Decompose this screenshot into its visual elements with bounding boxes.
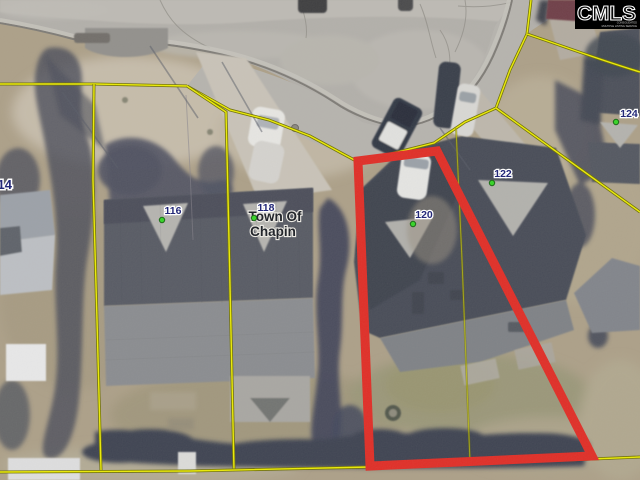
svg-text:124: 124 — [620, 108, 638, 120]
svg-text:122: 122 — [494, 168, 512, 180]
svg-text:MULTIPLE LISTING SERVICE: MULTIPLE LISTING SERVICE — [602, 24, 638, 28]
svg-text:Chapin: Chapin — [250, 224, 296, 239]
svg-text:114: 114 — [0, 177, 13, 192]
svg-text:120: 120 — [415, 209, 433, 221]
svg-text:116: 116 — [165, 205, 182, 217]
